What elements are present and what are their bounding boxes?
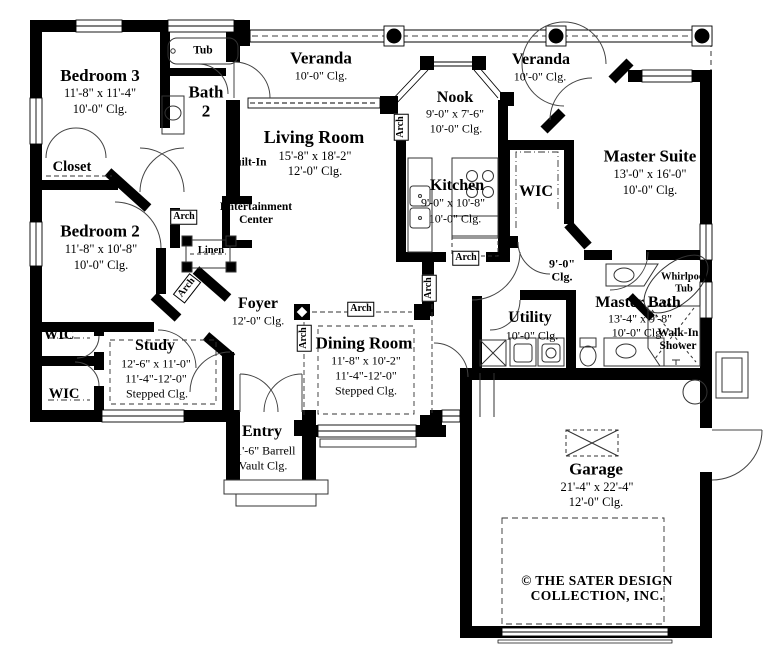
copyright-text: © THE SATER DESIGN COLLECTION, INC. [521, 573, 672, 603]
label-master-bath-name: Master Bath [595, 294, 680, 312]
copyright-line2: COLLECTION, INC. [521, 588, 672, 603]
label-master-suite-ceiling: 10'-0" Clg. [623, 183, 678, 197]
ent-center-line1: Entertainment [220, 201, 292, 214]
label-foyer-ceiling: 12'-0" Clg. [232, 314, 284, 327]
label-utility-ceiling: 10'-0" Clg. [506, 329, 558, 342]
label-closet: Closet [53, 159, 92, 175]
label-living-ceiling: 12'-0" Clg. [288, 164, 343, 178]
label-bedroom2-ceiling: 10'-0" Clg. [74, 258, 129, 272]
label-living-name: Living Room [264, 127, 365, 147]
label-garage-ceiling: 12'-0" Clg. [569, 495, 624, 509]
label-master-bath-ceiling: 10'-0" Clg. [612, 326, 664, 339]
whirlpool-line1: Whirlpool [661, 271, 707, 283]
walls-layer [30, 20, 712, 638]
ac-pad-icon [716, 352, 748, 398]
label-bedroom3-ceiling: 10'-0" Clg. [73, 102, 128, 116]
arch-label-hall: Arch [170, 210, 197, 225]
dining-porch-step [320, 439, 416, 447]
label-tub: Tub [193, 45, 212, 58]
label-veranda-right-ceiling: 10'-0" Clg. [514, 70, 566, 83]
entry-steps [224, 480, 328, 506]
label-master-bath-dims: 13'-4" x 9'-8" [608, 312, 672, 325]
master-vanity-bottom-icon [604, 338, 664, 366]
utility-sink-icon [480, 340, 506, 366]
label-master-suite-dims: 13'-0" x 16'-0" [613, 167, 686, 181]
label-entry-line2: Vault Clg. [239, 459, 288, 472]
label-study-dims: 12'-6" x 11'-0" [121, 357, 191, 370]
label-bedroom2-dims: 11'-8" x 10'-8" [65, 242, 138, 256]
label-bedroom3-name: Bedroom 3 [60, 66, 140, 86]
label-nook-ceiling: 10'-0" Clg. [430, 122, 482, 135]
arch-label-nook: Arch [394, 113, 409, 140]
label-veranda-left-name: Veranda [290, 48, 352, 67]
label-study-range: 11'-4"-12'-0" [125, 372, 187, 385]
copyright-line1: © THE SATER DESIGN [521, 573, 672, 588]
label-entry-name: Entry [242, 423, 282, 441]
arch-label-dining-top: Arch [347, 302, 374, 317]
label-linen: Linen [198, 245, 224, 257]
label-veranda-left-ceiling: 10'-0" Clg. [295, 69, 347, 82]
label-bedroom3-dims: 11'-8" x 11'-4" [64, 86, 136, 100]
label-dining-ceiling: Stepped Clg. [335, 384, 397, 397]
label-veranda-right-name: Veranda [512, 51, 570, 69]
label-garage-dims: 21'-4" x 22'-4" [560, 480, 633, 494]
label-kitchen-ceiling: 10'-0" Clg. [429, 212, 481, 225]
label-kitchen-dims: 9'-0" x 10'-8" [421, 196, 485, 209]
label-living-dims: 15'-8" x 18'-2" [278, 149, 351, 163]
label-kitchen-name: Kitchen [430, 177, 484, 195]
label-nook-dims: 9'-0" x 7'-6" [426, 107, 484, 120]
label-entry-line1: 11'-6" Barrell [231, 444, 296, 457]
ent-center-line2: Center [220, 214, 292, 227]
hall-ceiling-line2: Clg. [549, 271, 575, 284]
label-utility-name: Utility [508, 309, 552, 327]
label-bath2-name: Bath [189, 82, 224, 101]
label-wic-master: WIC [519, 183, 553, 201]
arch-label-dining-left: Arch [297, 324, 312, 351]
label-whirlpool-tub: Whirlpool Tub [661, 271, 707, 295]
bedroom3-name: Bedroom 3 [60, 66, 140, 85]
label-study-ceiling: Stepped Clg. [126, 387, 188, 400]
label-master-suite-name: Master Suite [604, 146, 697, 165]
label-entertainment-center: Entertainment Center [220, 201, 292, 227]
whirlpool-line2: Tub [661, 283, 707, 295]
floor-plan: Bedroom 3 11'-8" x 11'-4" 10'-0" Clg. Tu… [0, 0, 775, 647]
label-hall-ceiling: 9'-0" Clg. [549, 258, 575, 285]
label-dining-range: 11'-4"-12'-0" [335, 369, 397, 382]
label-foyer-name: Foyer [238, 295, 278, 313]
label-walk-in-shower: Walk-In Shower [658, 327, 699, 353]
hall-ceiling-line1: 9'-0" [549, 258, 575, 271]
garage-vent-icon [566, 430, 618, 456]
toilet-icon [580, 338, 596, 366]
label-nook-name: Nook [437, 89, 473, 107]
arch-label-hall-east: Arch [422, 274, 437, 301]
label-dining-name: Dining Room [316, 333, 413, 352]
label-dining-dims: 11'-8" x 10'-2" [331, 354, 401, 367]
label-study-name: Study [135, 337, 175, 355]
label-garage-name: Garage [569, 459, 623, 478]
label-wic-upper: WIC [44, 327, 75, 343]
label-wic-lower: WIC [49, 386, 80, 402]
label-bedroom2-name: Bedroom 2 [60, 221, 140, 240]
walkin-line2: Shower [658, 340, 699, 353]
arch-label-kitchen: Arch [452, 251, 479, 266]
walkin-line1: Walk-In [658, 327, 699, 340]
label-built-in: Built-In [228, 157, 267, 170]
label-bath2-number: 2 [202, 101, 211, 120]
